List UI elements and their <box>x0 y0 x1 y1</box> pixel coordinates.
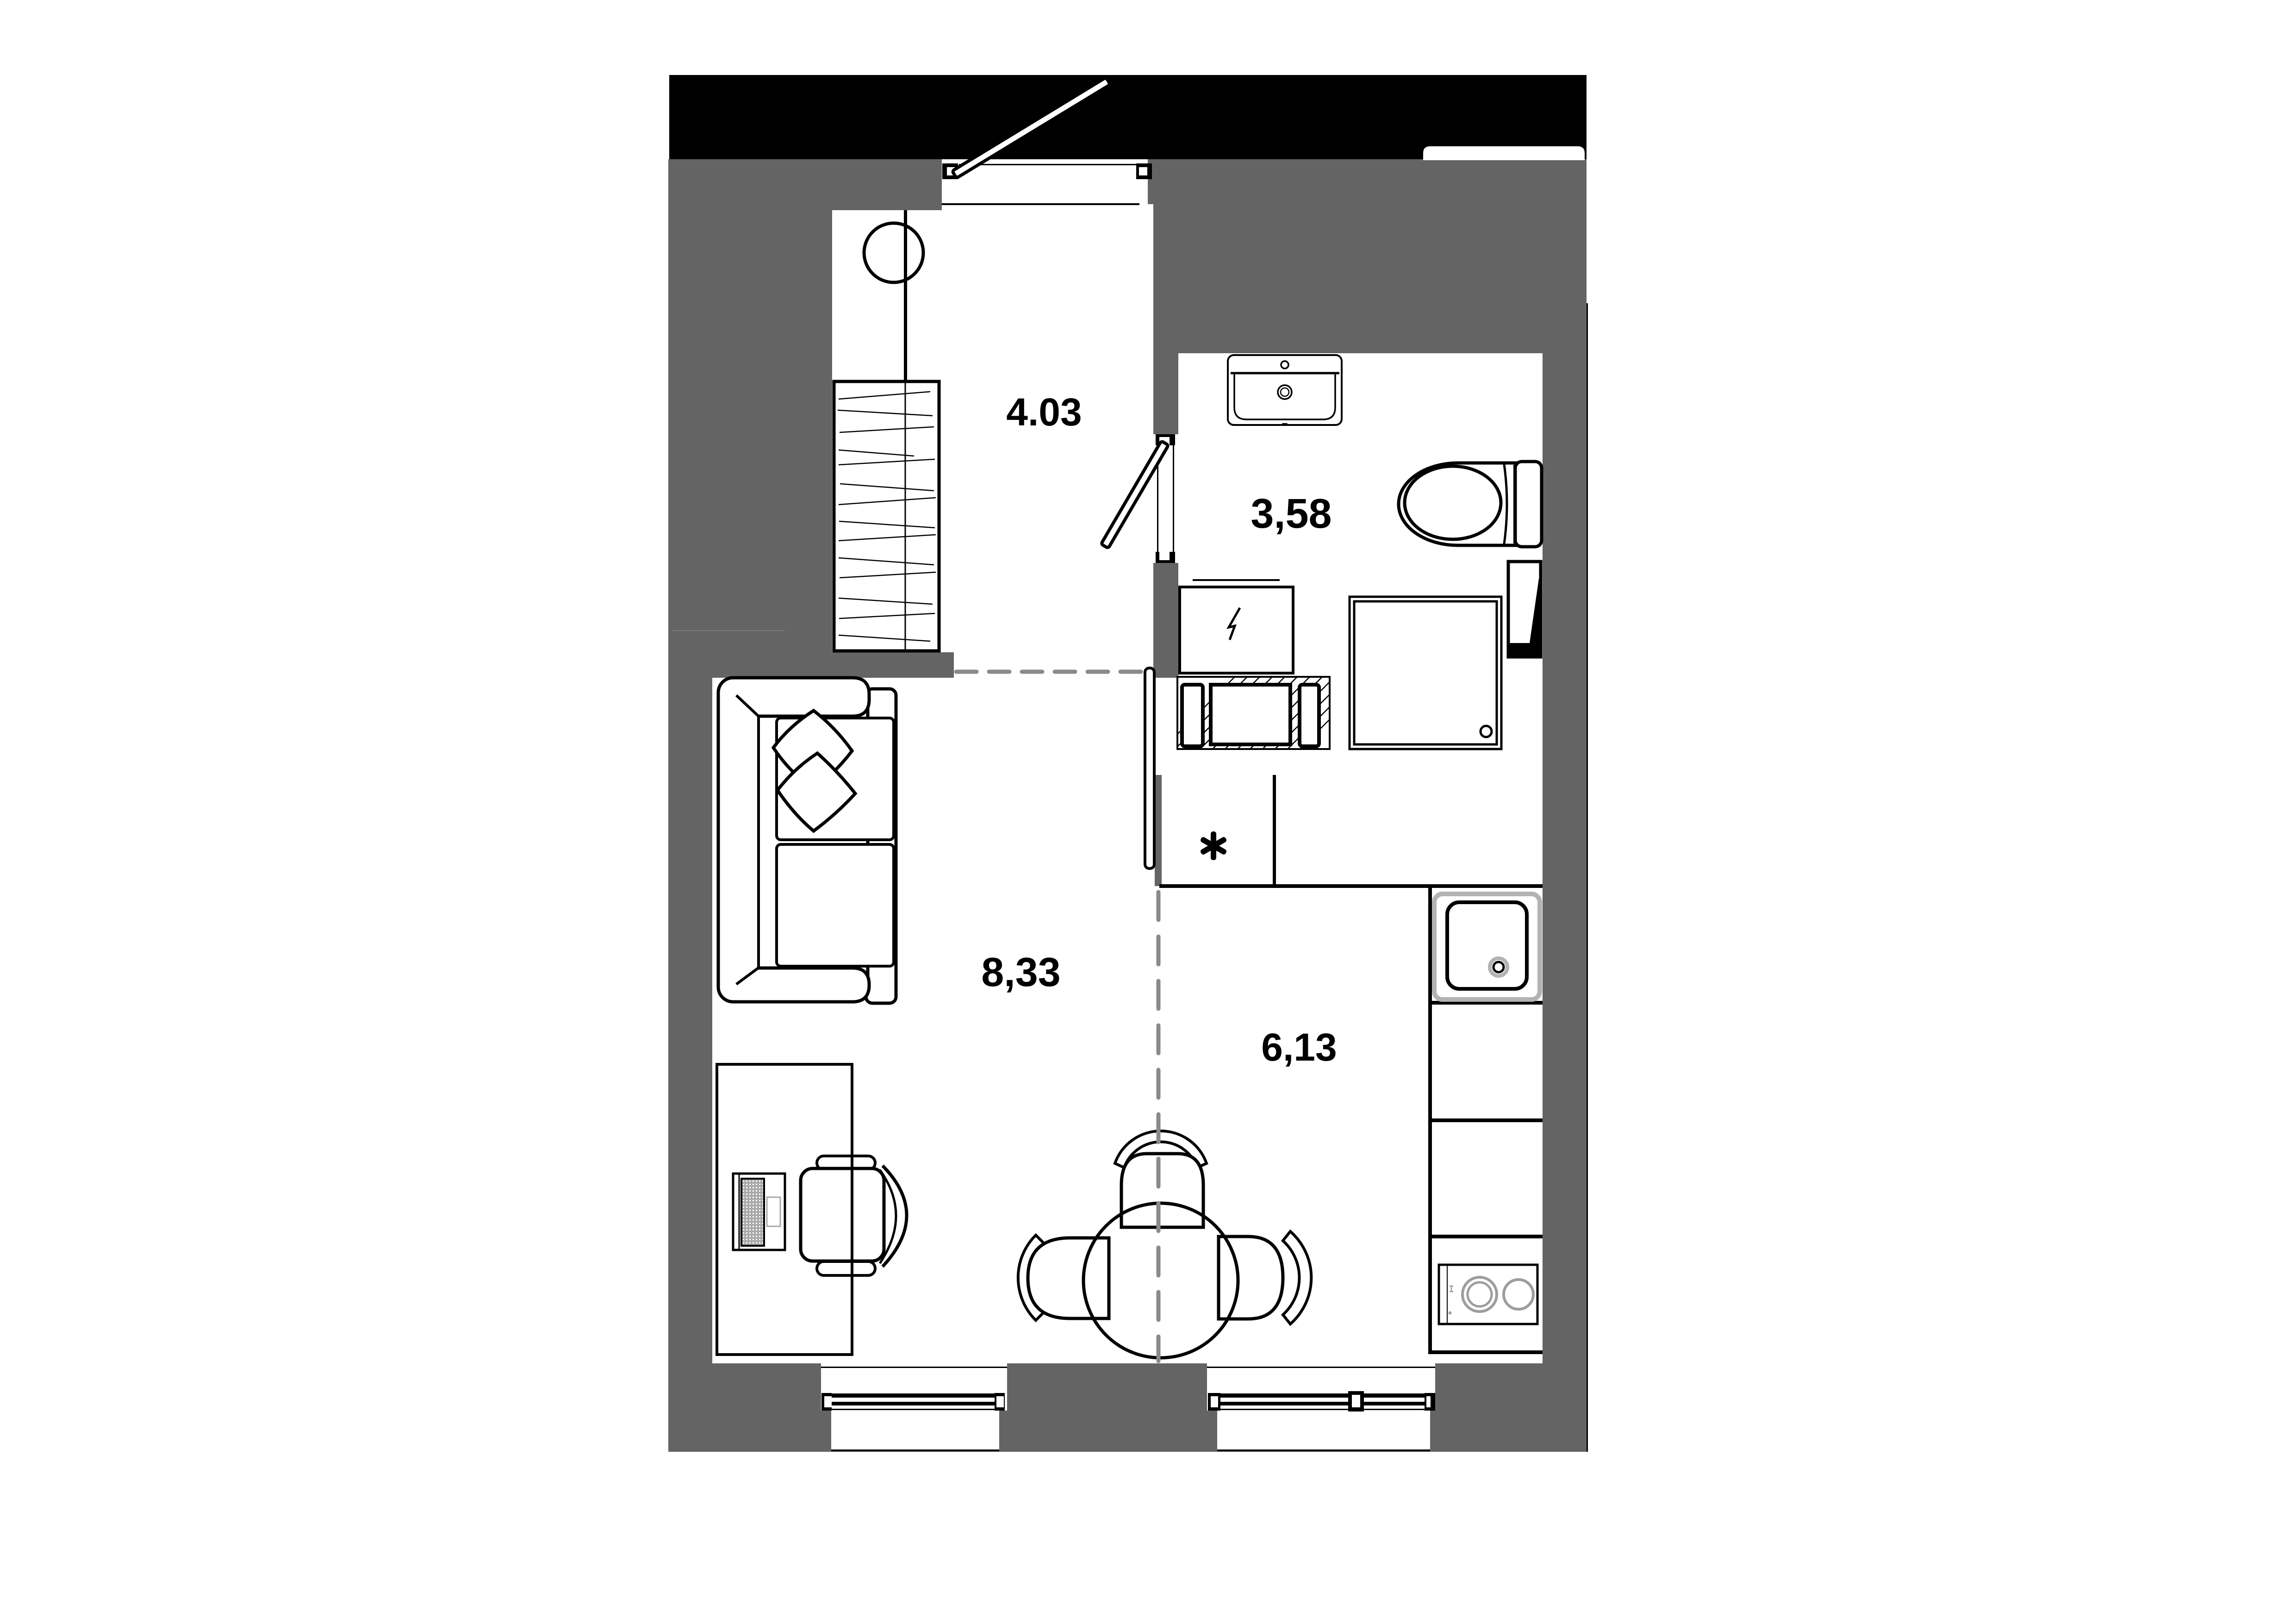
svg-text:4.03: 4.03 <box>1006 390 1082 434</box>
svg-text:3,58: 3,58 <box>1251 491 1332 537</box>
svg-text:6,13: 6,13 <box>1261 1025 1337 1069</box>
svg-text:8,33: 8,33 <box>981 949 1060 995</box>
